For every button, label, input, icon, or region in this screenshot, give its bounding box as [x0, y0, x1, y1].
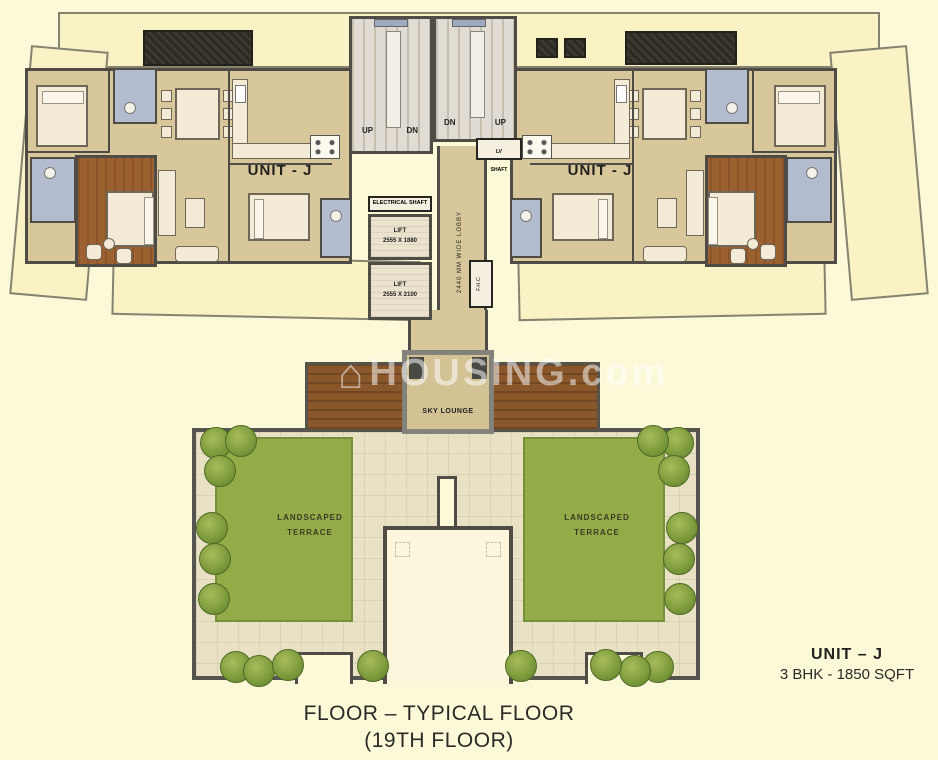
duct-hatch-small — [536, 38, 558, 58]
duct-hatch-small — [564, 38, 586, 58]
lounge-chair — [185, 198, 205, 228]
stair-landing — [386, 31, 401, 128]
chair — [116, 248, 132, 264]
sink-icon — [235, 85, 246, 103]
stair-vent — [374, 19, 408, 27]
sofa — [643, 246, 687, 262]
electrical-shaft-label: ELECTRICAL SHAFT — [373, 200, 428, 206]
stair-vent — [452, 19, 486, 27]
cutout-neck — [437, 476, 457, 532]
floor-plan-page: UP DN DN UP 2440 MM WIDE LOBBY ELECTRICA… — [0, 0, 938, 760]
toilet-icon — [330, 210, 342, 222]
dining-table — [642, 88, 687, 140]
toilet-icon — [124, 102, 136, 114]
pillow — [778, 91, 820, 104]
fhc-label: F.H.C — [476, 264, 486, 304]
staircase-left: UP DN — [349, 16, 433, 154]
stove-icon — [310, 135, 340, 159]
right-wing-balcony — [829, 45, 928, 301]
bed — [248, 193, 310, 241]
pillow — [254, 199, 264, 239]
sink-icon — [616, 85, 627, 103]
stair-up-label: UP — [495, 118, 506, 127]
dining-chair — [161, 108, 172, 120]
center-cutout — [383, 526, 513, 684]
pillow — [598, 199, 608, 239]
dining-table — [175, 88, 220, 140]
tree-icon — [243, 655, 275, 687]
tree-icon — [204, 455, 236, 487]
duct-hatch — [143, 30, 253, 66]
bathroom — [113, 68, 157, 124]
bed — [106, 191, 154, 247]
chair — [760, 244, 776, 260]
kitchen — [520, 71, 634, 163]
dining-chair — [690, 90, 701, 102]
tree-icon — [663, 543, 695, 575]
stair-dn-label: DN — [444, 118, 456, 127]
bathroom — [510, 198, 542, 258]
sofa — [175, 246, 219, 262]
column-post — [409, 357, 424, 379]
tree-icon — [664, 583, 696, 615]
lounge-chair — [657, 198, 677, 228]
tree-icon — [199, 543, 231, 575]
bathroom — [320, 198, 352, 258]
corner-mark — [486, 542, 501, 557]
bed — [552, 193, 614, 241]
tree-icon — [637, 425, 669, 457]
kitchen — [228, 71, 342, 163]
tree-icon — [198, 583, 230, 615]
bedroom — [752, 71, 834, 153]
lv-shaft-label: LV SHAFT — [491, 149, 508, 173]
pillow — [42, 91, 84, 104]
master-bathroom — [30, 157, 76, 223]
tree-icon — [196, 512, 228, 544]
tree-icon — [590, 649, 622, 681]
floor-title-line2: (19TH FLOOR) — [219, 729, 659, 753]
column-post — [472, 357, 487, 379]
electrical-shaft: ELECTRICAL SHAFT — [368, 196, 432, 212]
armchair — [686, 170, 704, 236]
tree-icon — [272, 649, 304, 681]
unit-summary: UNIT – J 3 BHK - 1850 SQFT — [756, 646, 938, 683]
bathroom — [705, 68, 749, 124]
floor-title-line1: FLOOR – TYPICAL FLOOR — [219, 702, 659, 726]
bedroom — [28, 71, 110, 153]
terrace-label-right: LANDSCAPED TERRACE — [537, 510, 657, 540]
duct-hatch — [625, 31, 737, 65]
side-table — [103, 238, 115, 250]
toilet-icon — [726, 102, 738, 114]
lift-lower: LIFT 2555 X 2100 — [368, 262, 432, 320]
tree-icon — [225, 425, 257, 457]
unit-summary-name: UNIT – J — [756, 646, 938, 664]
bed — [774, 85, 826, 147]
bed — [36, 85, 88, 147]
pillow — [708, 197, 718, 245]
stair-up-label: UP — [362, 126, 373, 135]
stove-icon — [522, 135, 552, 159]
master-bathroom — [786, 157, 832, 223]
lift-lower-label: LIFT 2555 X 2100 — [383, 281, 417, 300]
unit-summary-spec: 3 BHK - 1850 SQFT — [756, 666, 938, 683]
chair — [730, 248, 746, 264]
stair-dn-label: DN — [406, 126, 418, 135]
tree-icon — [505, 650, 537, 682]
lv-shaft: LV SHAFT — [476, 138, 522, 160]
dining-chair — [161, 126, 172, 138]
tree-icon — [658, 455, 690, 487]
master-bedroom — [75, 155, 157, 267]
lift-upper: LIFT 2555 X 1880 — [368, 214, 432, 260]
sky-lounge-label: SKY LOUNGE — [407, 408, 489, 415]
tree-icon — [357, 650, 389, 682]
lift-upper-label: LIFT 2555 X 1880 — [383, 227, 417, 246]
side-table — [747, 238, 759, 250]
staircase-right: DN UP — [433, 16, 517, 142]
dining-chair — [161, 90, 172, 102]
apartment-unit-j-left — [25, 58, 360, 308]
corner-mark — [395, 542, 410, 557]
tree-icon — [619, 655, 651, 687]
lobby-width-label: 2440 MM WIDE LOBBY — [457, 187, 469, 317]
apartment-unit-j-right — [502, 58, 837, 308]
master-bedroom — [705, 155, 787, 267]
unit-label-right: UNIT - J — [545, 162, 655, 179]
toilet-icon — [44, 167, 56, 179]
armchair — [158, 170, 176, 236]
kitchen-counter — [544, 143, 630, 159]
dining-chair — [690, 126, 701, 138]
tree-icon — [666, 512, 698, 544]
dining-chair — [690, 108, 701, 120]
toilet-icon — [520, 210, 532, 222]
stair-landing — [470, 31, 485, 118]
toilet-icon — [806, 167, 818, 179]
floor-title: FLOOR – TYPICAL FLOOR (19TH FLOOR) — [219, 702, 659, 753]
sky-lounge: SKY LOUNGE — [402, 350, 494, 434]
chair — [86, 244, 102, 260]
pillow — [144, 197, 154, 245]
kitchen-counter — [232, 143, 318, 159]
unit-label-left: UNIT - J — [225, 162, 335, 179]
terrace-label-left: LANDSCAPED TERRACE — [250, 510, 370, 540]
